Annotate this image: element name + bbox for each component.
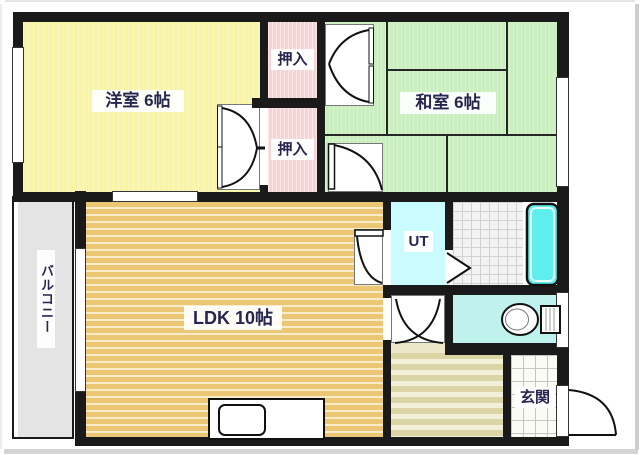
wall-ut-bath (445, 202, 453, 250)
japanese-room-label: 和室 6帖 (400, 92, 496, 114)
wall-mid-horizontal (13, 192, 568, 202)
wall-washroom-toilet (445, 295, 453, 347)
utility-door-opening (383, 230, 391, 285)
japanese-room-doorswing (328, 143, 383, 192)
wall-ldk-right-a (383, 202, 391, 230)
bathroom-door-opening (445, 250, 453, 285)
hallway-area (391, 353, 503, 437)
closet-upper-doorswing (325, 24, 374, 106)
ldk-label: LDK 10帖 (184, 306, 282, 330)
frame-top (5, 0, 635, 2)
wall-bath-bottom (383, 285, 568, 295)
entrance-door-arc (569, 390, 616, 435)
wall-closet-left-upper (260, 22, 268, 105)
wall-hall-genkan (503, 353, 511, 437)
western-room-label: 洋室 6帖 (92, 90, 184, 112)
closet-lower-label: 押入 (271, 139, 314, 160)
entrance-door-opening (556, 385, 569, 437)
closet-lower-doorswing (217, 104, 260, 190)
utility-doorswing (354, 229, 383, 285)
entrance-label: 玄関 (515, 387, 555, 408)
window-western-left (12, 47, 24, 163)
bathroom-tile-floor (453, 202, 523, 285)
balcony-label: バルコニー (37, 250, 55, 348)
toilet-room-area (453, 295, 557, 343)
frame-bottom (4, 449, 638, 454)
bathroom-area (453, 202, 557, 285)
wall-ldk-right-c (383, 340, 391, 446)
floorplan: 洋室 6帖 押入 押入 和室 6帖 LDK 10帖 UT 玄関 バルコニー (0, 0, 640, 455)
closet-upper-label: 押入 (271, 49, 314, 70)
wall-bottom (75, 437, 568, 446)
balcony-sliding-door (75, 248, 86, 392)
wall-closet-mid (252, 98, 325, 108)
window-toilet-right (556, 292, 569, 348)
window-japanese-right (556, 77, 569, 187)
wall-top (13, 12, 568, 22)
utility-label: UT (404, 231, 433, 252)
washroom-door-opening (383, 298, 391, 340)
wall-closet-right (317, 22, 325, 192)
hall-threshold (391, 343, 445, 353)
frame-right (635, 4, 639, 450)
frame-left (0, 4, 2, 449)
window-western-bottom (112, 191, 198, 202)
wall-closet-left-stub (260, 185, 268, 202)
washroom-doorswing (391, 295, 445, 343)
